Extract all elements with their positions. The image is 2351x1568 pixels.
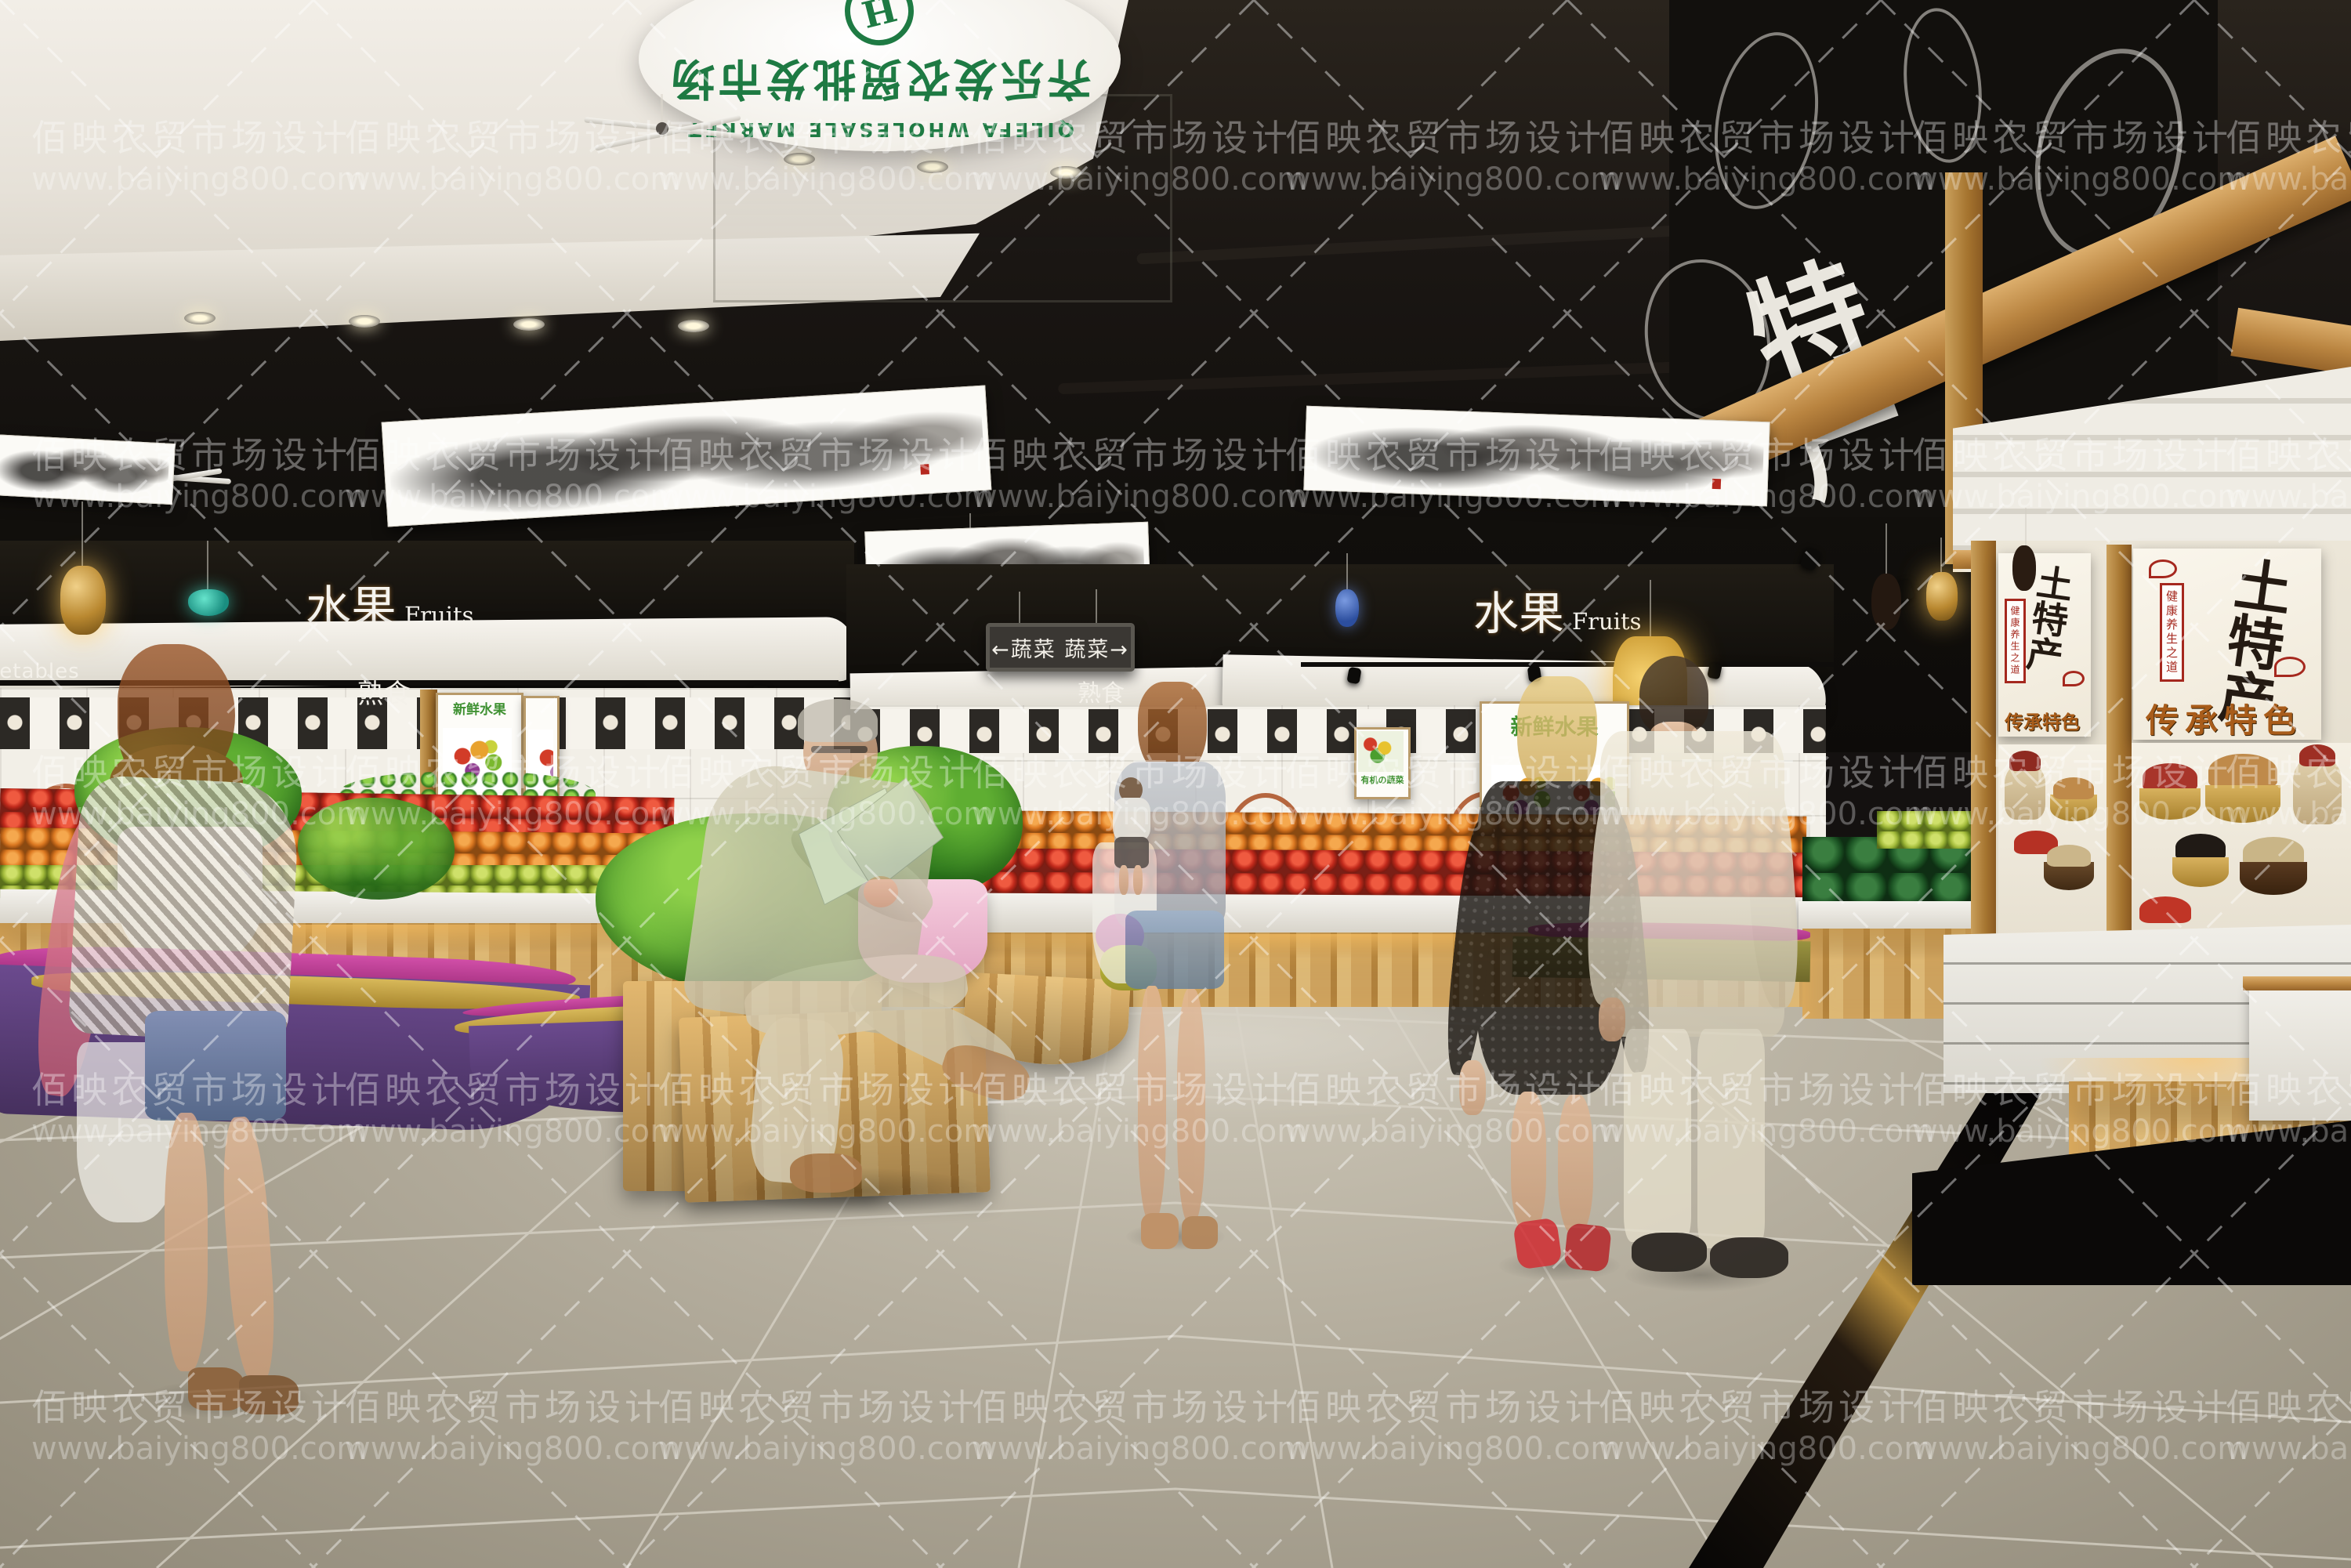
kiosk-pillar [2106, 545, 2132, 972]
pendant-cord [2025, 508, 2027, 547]
loafer-shoe [790, 1153, 862, 1193]
side-counter [2249, 983, 2351, 1121]
cloud-motif [2274, 657, 2306, 677]
amber-glass-pendant [1926, 572, 1958, 621]
fruits-sign-cn: 水果 [1473, 577, 1564, 643]
hanging-gourd-decoration [1871, 574, 1901, 630]
white-top [1113, 798, 1150, 842]
specialty-poster-bottom: 传承特色 [2005, 707, 2080, 734]
trouser-leg [1624, 1029, 1691, 1242]
downlight [784, 153, 815, 165]
person-distant [1107, 777, 1161, 895]
specialty-poster-large: 土特产 健康养生之道 传承特色 [2133, 549, 2321, 740]
pendant-cord [1650, 580, 1651, 638]
chalk-gourd-sketch [1701, 24, 1831, 218]
denim-shorts [1125, 911, 1224, 989]
fresh-fruit-poster-title: 新鲜水果 [438, 698, 521, 718]
pendant-cord [1886, 523, 1887, 575]
heel-shoe [1141, 1213, 1179, 1249]
sign-hanger [1019, 592, 1020, 625]
specialty-poster-side-label: 健康养生之道 [2005, 599, 2026, 683]
poster-veg-image [1358, 731, 1404, 772]
organic-vegetables-poster: 有机の蔬菜 [1354, 727, 1411, 799]
wedge-sandal [239, 1375, 299, 1414]
amber-glass-pendant [60, 566, 106, 635]
skirt [1114, 837, 1149, 868]
organic-veg-title: 有机の蔬菜 [1357, 773, 1408, 786]
sign-hanger [1096, 589, 1097, 624]
blue-glass-pendant [1335, 589, 1359, 627]
grey-hair [798, 699, 878, 742]
ink-art-light-panel [1303, 406, 1770, 507]
glasses [811, 746, 868, 753]
downlight [678, 320, 709, 332]
trouser-leg [1697, 1029, 1765, 1248]
loafer-shoe [937, 1037, 1034, 1108]
fruits-sign-right: 水果 Fruits [1473, 577, 1642, 643]
person-walking-woman-left [0, 627, 360, 1426]
wedge-sandal [188, 1367, 245, 1410]
downlight [184, 312, 216, 324]
downlight [1050, 166, 1081, 179]
ink-art-light-panel [0, 434, 176, 505]
pendant-cord [207, 541, 208, 591]
downlight [349, 315, 380, 328]
black-shoe [1710, 1237, 1788, 1278]
pendant-cord [82, 502, 83, 567]
logo-emblem: H [838, 0, 922, 53]
cooked-food-sign-left: 熟食 [357, 672, 411, 711]
red-high-heel [1512, 1217, 1563, 1269]
pendant-cord [1346, 553, 1348, 591]
pendant-cord [1940, 538, 1942, 574]
dried-goods-display [1998, 744, 2106, 950]
kiosk-pillar [1971, 541, 1996, 980]
counter-fascia [1799, 901, 1991, 932]
side-counter-wood-top [2243, 976, 2351, 990]
vegetables-partial-sign: Vegetables [0, 660, 80, 683]
vegetables-hanging-sign: ←蔬菜 蔬菜→ [986, 623, 1135, 672]
green-produce-display [1877, 811, 1987, 849]
market-rendering: 特产 QILEFA WHOLESALE MARKET 齐乐发农贸批发市场 H [0, 0, 2351, 1568]
heel-shoe [1182, 1216, 1218, 1249]
cloud-motif [2149, 559, 2177, 578]
fruits-sign-en: Fruits [1572, 608, 1641, 635]
chalk-gourd-sketch [1896, 4, 1989, 166]
dried-goods-display [2132, 743, 2351, 951]
downlight [513, 318, 545, 331]
teal-glass-pendant [188, 589, 229, 616]
downlight [917, 161, 948, 173]
hanging-gourd-decoration [2012, 545, 2036, 591]
person-sitting-man-newspaper [666, 690, 1042, 1222]
person-couple-man [1583, 646, 1802, 1297]
denim-shorts [145, 1011, 286, 1121]
ceiling-fan [584, 94, 748, 141]
specialty-poster-side-label: 健康养生之道 [2160, 583, 2184, 682]
cloud-motif [2063, 671, 2085, 686]
checkered-top [68, 774, 301, 1044]
specialty-poster-bottom: 传承特色 [2146, 694, 2302, 740]
person-walking-woman-center [1081, 674, 1254, 1269]
black-shoe [1632, 1233, 1707, 1272]
specialty-poster-small: 土特产 健康养生之道 传承特色 [1998, 553, 2091, 737]
